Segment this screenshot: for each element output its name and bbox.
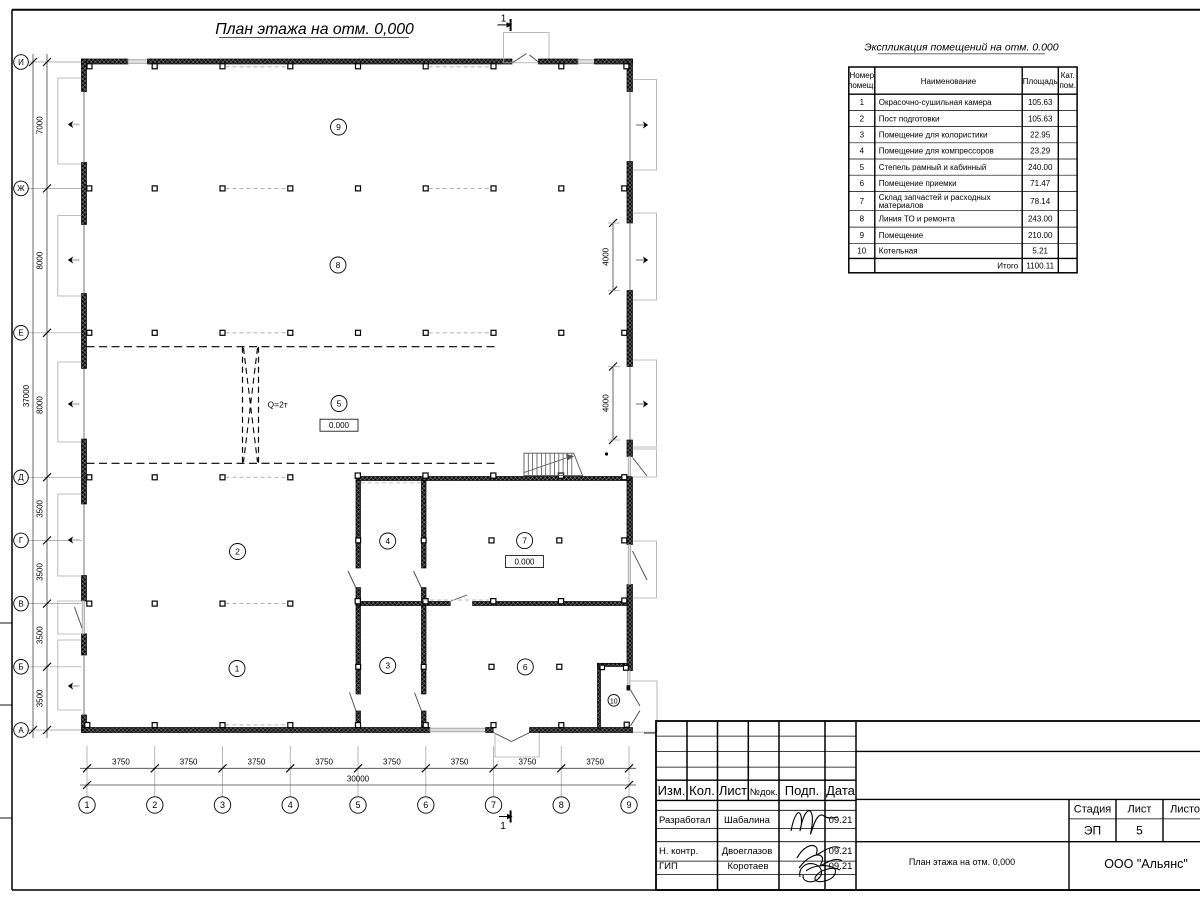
svg-text:3500: 3500 [36,689,45,707]
svg-text:23.29: 23.29 [1030,147,1051,156]
svg-text:5: 5 [337,399,342,409]
svg-text:Дата: Дата [826,783,856,798]
svg-text:8: 8 [860,215,865,224]
svg-text:5: 5 [860,163,865,172]
svg-text:1: 1 [500,821,506,832]
svg-text:Кат.: Кат. [1061,71,1075,80]
svg-text:Помещение: Помещение [879,231,924,240]
svg-text:6: 6 [423,800,428,810]
svg-text:2: 2 [235,547,240,557]
svg-text:7: 7 [491,800,496,810]
svg-text:9: 9 [336,122,341,132]
svg-text:План этажа на отм. 0,000: План этажа на отм. 0,000 [215,21,414,38]
svg-text:1: 1 [860,98,865,107]
svg-text:0.000: 0.000 [514,558,535,567]
svg-text:8: 8 [336,260,341,270]
svg-text:3750: 3750 [248,758,266,767]
svg-text:Лист: Лист [719,783,747,798]
svg-text:ООО "Альянс": ООО "Альянс" [1104,857,1188,871]
svg-text:3750: 3750 [112,758,130,767]
svg-text:8: 8 [559,800,564,810]
svg-text:10: 10 [610,698,618,705]
svg-text:Н. контр.: Н. контр. [659,846,698,857]
svg-text:Подп.: Подп. [785,783,820,798]
svg-text:3750: 3750 [586,758,604,767]
svg-text:Окрасочно-сушильная камера: Окрасочно-сушильная камера [879,98,992,107]
svg-text:Наименование: Наименование [921,77,977,86]
svg-text:ГИП: ГИП [659,861,678,872]
svg-text:Е: Е [18,329,23,338]
svg-text:3500: 3500 [36,499,45,517]
svg-text:7: 7 [522,536,527,546]
svg-text:3750: 3750 [519,758,537,767]
svg-text:3500: 3500 [36,563,45,581]
svg-text:8000: 8000 [36,251,45,269]
svg-text:9: 9 [626,800,631,810]
svg-text:Помещение приемки: Помещение приемки [879,179,957,188]
svg-text:09.21: 09.21 [829,815,853,826]
svg-text:Шабалина: Шабалина [724,815,771,826]
svg-text:Номер: Номер [849,71,874,80]
svg-text:Ж: Ж [17,184,25,193]
svg-text:4000: 4000 [602,394,611,412]
svg-text:ЭП: ЭП [1084,824,1101,838]
svg-text:Г: Г [19,536,24,545]
svg-text:В: В [18,599,23,608]
svg-text:Помещение для колористики: Помещение для колористики [879,131,988,140]
svg-text:№док.: №док. [750,787,778,798]
svg-text:Пост подготовки: Пост подготовки [879,114,940,123]
svg-text:243.00: 243.00 [1028,215,1053,224]
svg-text:3750: 3750 [383,758,401,767]
svg-text:37000: 37000 [22,384,31,407]
svg-text:240.00: 240.00 [1028,163,1053,172]
svg-text:План этажа на отм. 0,000: План этажа на отм. 0,000 [909,857,1015,867]
svg-text:Площадь: Площадь [1023,77,1058,86]
svg-text:Д: Д [18,473,24,482]
svg-text:И: И [18,58,24,67]
svg-text:5.21: 5.21 [1032,247,1048,256]
svg-text:Котельная: Котельная [879,247,918,256]
svg-text:Экспликация помещений на отм.: Экспликация помещений на отм. 0.000 [864,42,1058,54]
svg-text:4: 4 [860,147,865,156]
svg-text:4: 4 [385,536,390,546]
svg-text:Стадия: Стадия [1074,804,1112,816]
svg-text:9: 9 [860,231,865,240]
svg-text:6: 6 [860,179,865,188]
svg-text:4000: 4000 [602,247,611,265]
svg-text:210.00: 210.00 [1028,231,1053,240]
svg-text:2: 2 [860,114,865,123]
svg-text:Кол.: Кол. [689,783,715,798]
svg-text:22.95: 22.95 [1030,131,1051,140]
svg-text:7: 7 [860,197,865,206]
svg-text:помещ.: помещ. [848,81,876,90]
svg-text:8000: 8000 [36,396,45,414]
svg-text:5: 5 [1136,824,1143,838]
svg-text:10: 10 [857,247,866,256]
svg-text:71.47: 71.47 [1030,179,1051,188]
svg-text:Изм.: Изм. [658,783,686,798]
svg-text:1: 1 [501,14,507,25]
svg-text:пом.: пом. [1059,81,1076,90]
svg-text:1100.11: 1100.11 [1026,261,1054,270]
svg-text:3750: 3750 [180,758,198,767]
svg-text:0.000: 0.000 [329,421,350,430]
svg-text:3750: 3750 [315,758,333,767]
svg-text:3: 3 [860,131,865,140]
svg-text:Б: Б [18,663,23,672]
svg-text:Помещение для компрессоров: Помещение для компрессоров [879,147,994,156]
svg-text:Лист: Лист [1128,804,1152,816]
svg-text:Линия ТО и ремонта: Линия ТО и ремонта [879,215,956,224]
svg-text:3500: 3500 [36,626,45,644]
svg-text:78.14: 78.14 [1030,197,1051,206]
svg-text:Итого: Итого [997,261,1019,270]
svg-text:1: 1 [235,664,240,674]
svg-text:4: 4 [288,800,293,810]
svg-text:материалов: материалов [879,201,924,210]
svg-text:105.63: 105.63 [1028,114,1053,123]
svg-text:5: 5 [355,800,360,810]
svg-text:2: 2 [152,800,157,810]
svg-text:А: А [18,726,24,735]
svg-text:1: 1 [84,800,89,810]
svg-text:Степель рамный и кабинный: Степель рамный и кабинный [879,163,987,172]
svg-text:6: 6 [523,662,528,672]
svg-text:3: 3 [385,661,390,671]
svg-text:7000: 7000 [36,116,45,134]
svg-text:3750: 3750 [451,758,469,767]
svg-text:30000: 30000 [347,775,370,784]
svg-text:105.63: 105.63 [1028,98,1053,107]
svg-text:Двоеглазов: Двоеглазов [722,846,773,857]
svg-text:Листов: Листов [1170,804,1200,816]
svg-text:Q=2т: Q=2т [268,399,288,409]
svg-text:Разработал: Разработал [659,815,711,826]
svg-text:Коротаев: Коротаев [727,861,768,872]
svg-text:3: 3 [220,800,225,810]
